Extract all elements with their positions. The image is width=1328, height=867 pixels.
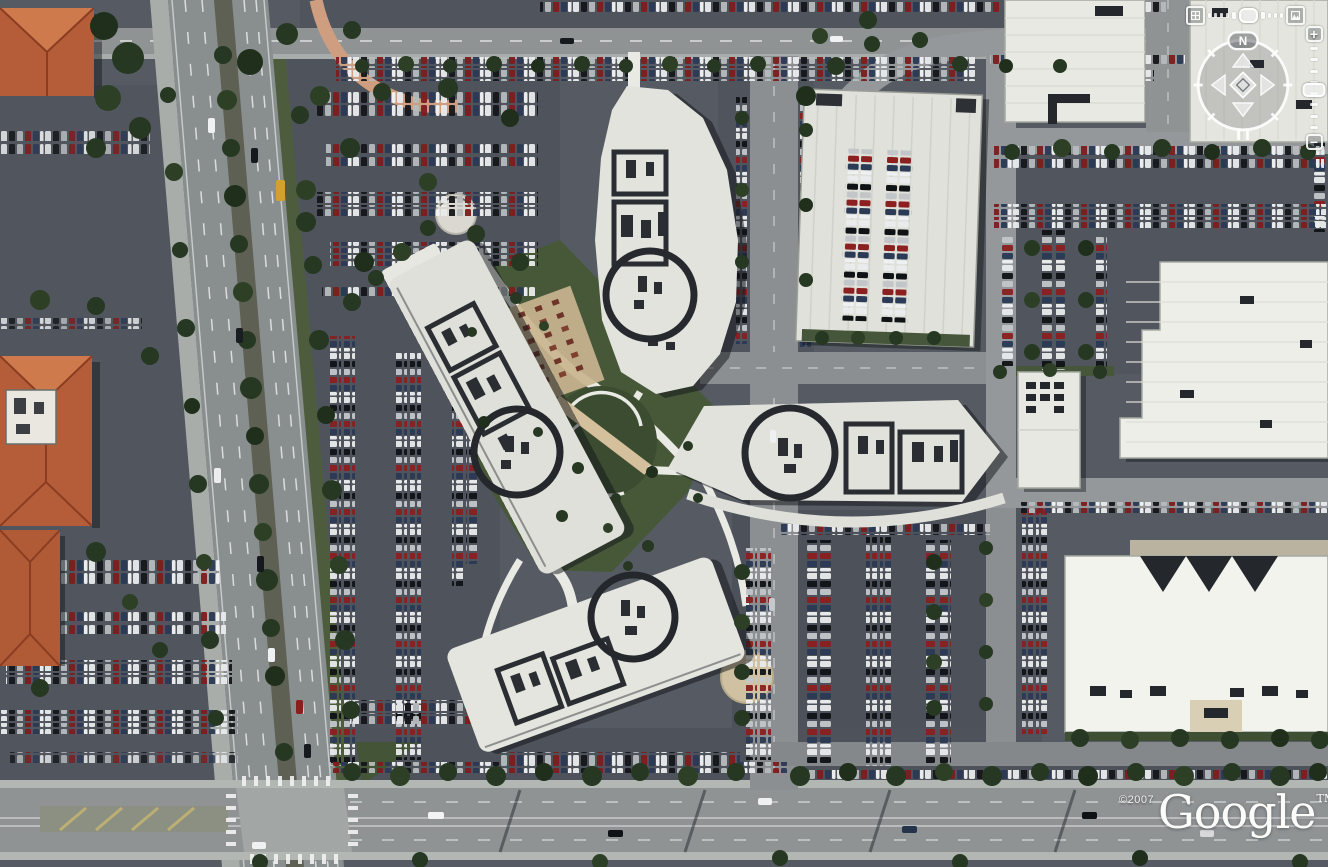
zoom-in-icon: + <box>1310 26 1318 42</box>
zoom-slider-handle[interactable] <box>1303 83 1326 97</box>
tile-roof-building-left-lower <box>0 530 65 666</box>
zoom-in-button[interactable]: + <box>1306 26 1323 42</box>
zoom-out-icon: − <box>1310 134 1318 150</box>
satellite-map-viewport[interactable]: N + − ©2007 GoogleTM <box>0 0 1328 867</box>
compass-navigator[interactable]: N <box>1187 29 1299 141</box>
north-label: N <box>1239 35 1248 48</box>
horizon-view-icon <box>1291 11 1300 20</box>
copyright-text: ©2007 <box>1119 794 1154 806</box>
tile-roof-building-left-middle <box>0 356 100 528</box>
office-building-small-right <box>1018 372 1086 492</box>
aerial-imagery <box>0 0 1328 867</box>
north-indicator[interactable]: N <box>1228 32 1257 49</box>
zoom-out-button[interactable]: − <box>1306 134 1323 150</box>
top-down-view-icon <box>1191 11 1200 20</box>
top-down-view-button[interactable] <box>1186 6 1205 25</box>
zoom-slider[interactable]: + − <box>1300 26 1328 150</box>
zoom-track[interactable] <box>1300 45 1328 131</box>
google-logo-watermark: GoogleTM <box>1158 787 1328 838</box>
industrial-building-top-right-a <box>1005 0 1145 124</box>
horizon-view-button[interactable] <box>1286 6 1305 25</box>
tilt-slider-handle[interactable] <box>1239 8 1258 23</box>
tilt-slider[interactable] <box>1186 5 1318 25</box>
campus-building-east <box>668 400 1008 522</box>
trademark-symbol: TM <box>1317 792 1328 805</box>
parking-structure <box>796 89 990 351</box>
tile-roof-building-top-left <box>0 8 102 98</box>
industrial-building-bottom-right <box>1065 540 1328 741</box>
